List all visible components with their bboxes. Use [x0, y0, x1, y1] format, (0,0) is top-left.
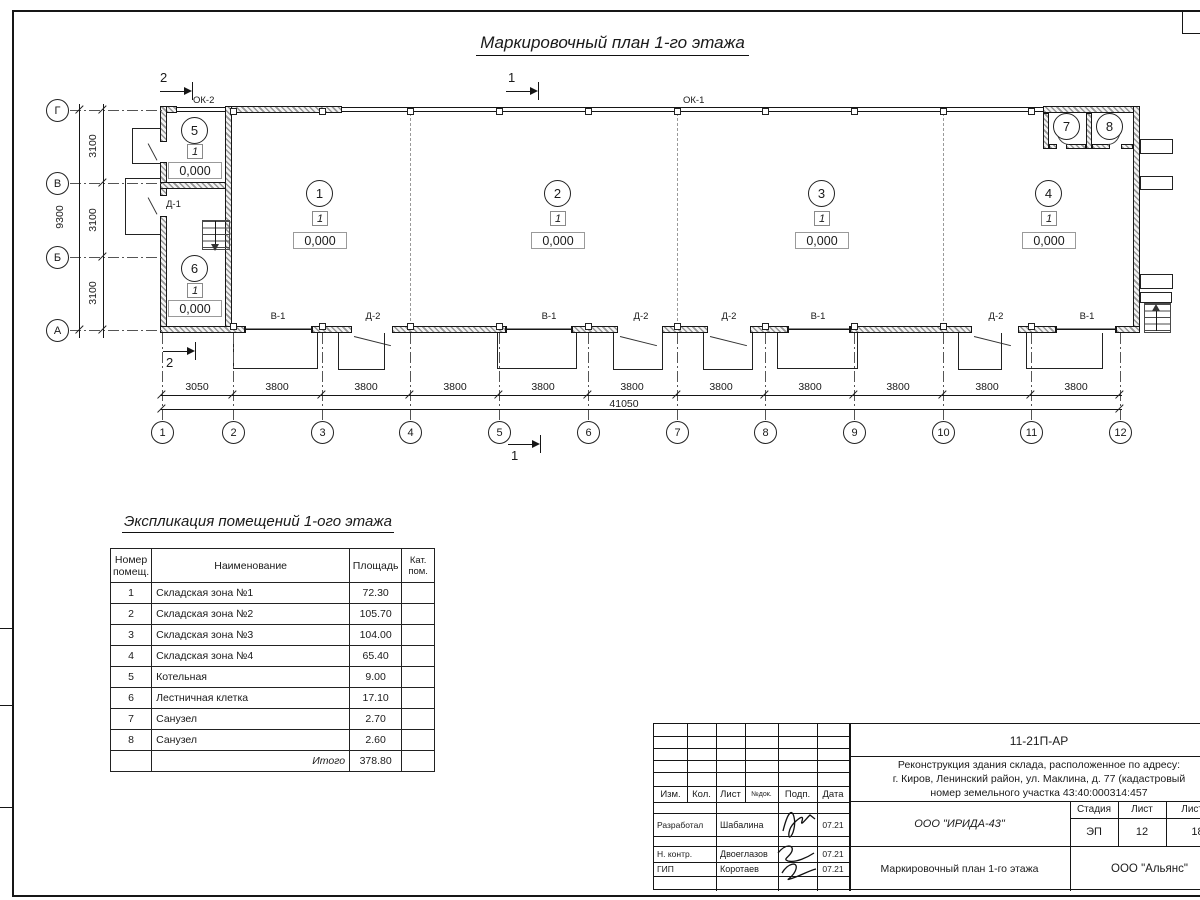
cell-cat	[402, 646, 435, 667]
arrow-right-icon	[187, 347, 195, 355]
role-name: Коротаев	[717, 862, 780, 876]
window-label-ok1: ОК-1	[683, 95, 704, 106]
opening-label: В-1	[1072, 311, 1102, 322]
rev-header: Лист	[716, 786, 745, 802]
col-axis-circle: 11	[1020, 421, 1043, 444]
column-marker	[851, 108, 858, 115]
role-label: Разработал	[655, 813, 717, 836]
stamp-line	[654, 736, 849, 737]
opening-label: Д-2	[358, 311, 388, 322]
explication-title: Экспликация помещений 1-ого этажа	[122, 513, 394, 531]
cell-area: 2.70	[350, 709, 402, 730]
wall	[160, 216, 167, 333]
col-header: Номер помещ.	[111, 549, 152, 583]
dim-value: 3050	[175, 381, 219, 393]
wall	[662, 326, 708, 333]
arrow-right-icon	[532, 440, 540, 448]
col-axis-circle: 8	[754, 421, 777, 444]
wall	[1066, 144, 1086, 149]
room-number-circle: 5	[181, 117, 208, 144]
role-label: Н. контр.	[655, 846, 717, 862]
porch	[125, 178, 160, 235]
section-marker-label: 2	[160, 70, 167, 85]
project-description: Реконструкция здания склада, расположенн…	[849, 758, 1200, 800]
page-title: Маркировочный план 1-го этажа	[340, 33, 885, 53]
axis-line	[499, 333, 500, 421]
cell-cat	[402, 667, 435, 688]
axis-line	[943, 333, 944, 421]
window-strip-ok2	[177, 107, 228, 112]
room-unit-box: 1	[187, 283, 203, 298]
arrow-up-icon	[1152, 304, 1160, 311]
role-date: 07.21	[817, 862, 849, 876]
door-label-d1: Д-1	[166, 199, 181, 210]
room-unit-box: 1	[550, 211, 566, 226]
stair-arrow-line	[215, 221, 216, 245]
axis-line	[854, 333, 855, 421]
explication-title-text: Экспликация помещений 1-ого этажа	[122, 513, 394, 533]
cell-area: 2.60	[350, 730, 402, 751]
cell-name: Складская зона №4	[152, 646, 350, 667]
cell-num	[111, 751, 152, 772]
column-marker	[940, 108, 947, 115]
room-level-mark: 0,000	[168, 300, 222, 317]
room-level-mark: 0,000	[531, 232, 585, 249]
project-description-line: Реконструкция здания склада, расположенн…	[849, 758, 1200, 772]
section-arrow	[506, 91, 532, 92]
room-number-circle: 7	[1053, 113, 1080, 140]
section-arrow	[160, 91, 186, 92]
column-marker	[496, 323, 503, 330]
cell-name: Складская зона №1	[152, 583, 350, 604]
stamp-line	[654, 748, 849, 749]
table-row: 2Складская зона №2105.70	[111, 604, 435, 625]
opening-label: В-1	[534, 311, 564, 322]
cell-num: 2	[111, 604, 152, 625]
column-marker	[319, 323, 326, 330]
section-marker-label: 1	[511, 448, 518, 463]
porch	[132, 128, 160, 164]
cell-area: 72.30	[350, 583, 402, 604]
role-date: 07.21	[817, 813, 849, 836]
stair-arrow-line	[1156, 310, 1157, 331]
table-total-row: Итого378.80	[111, 751, 435, 772]
ramp	[1140, 292, 1172, 303]
cell-num: 7	[111, 709, 152, 730]
sheets-value: 18	[1166, 818, 1200, 846]
room-number-circle: 4	[1035, 180, 1062, 207]
axis-line	[410, 333, 411, 421]
signature	[774, 839, 818, 883]
dim-value: 3800	[876, 381, 920, 393]
row-axis-circle: В	[46, 172, 69, 195]
room-number-circle: 1	[306, 180, 333, 207]
stage-value: ЭП	[1070, 818, 1118, 846]
column-marker	[674, 108, 681, 115]
room-unit-box: 1	[814, 211, 830, 226]
section-tick	[538, 82, 539, 100]
frame-corner-box	[1182, 11, 1200, 34]
col-axis-circle: 10	[932, 421, 955, 444]
col-axis-circle: 9	[843, 421, 866, 444]
sheets-label: Листов	[1166, 801, 1200, 818]
dim-value: 3800	[521, 381, 565, 393]
column-marker	[762, 323, 769, 330]
column-marker	[585, 323, 592, 330]
ramp	[1140, 139, 1173, 154]
room-level-mark: 0,000	[168, 162, 222, 179]
cell-num: 5	[111, 667, 152, 688]
window-v1	[788, 326, 850, 333]
axis-line	[322, 333, 323, 421]
table-row: 3Складская зона №3104.00	[111, 625, 435, 646]
axis-line	[70, 257, 162, 258]
section-marker-label: 2	[166, 355, 173, 370]
col-axis-circle: 3	[311, 421, 334, 444]
role-label: ГИП	[655, 862, 717, 876]
total-label: Итого	[152, 751, 350, 772]
drawing-sheet: { "title": "Маркировочный план 1-го этаж…	[0, 0, 1200, 900]
table-row: 5Котельная9.00	[111, 667, 435, 688]
opening-label: Д-2	[981, 311, 1011, 322]
stamp-line	[654, 876, 849, 877]
row-axis-circle: А	[46, 319, 69, 342]
axis-line	[233, 333, 234, 421]
col-axis-circle: 5	[488, 421, 511, 444]
cell-area: 17.10	[350, 688, 402, 709]
cell-area: 105.70	[350, 604, 402, 625]
porch	[613, 333, 663, 370]
cell-cat	[402, 730, 435, 751]
frame-margin-tick	[0, 628, 12, 629]
cell-name: Котельная	[152, 667, 350, 688]
page-title-text: Маркировочный план 1-го этажа	[476, 33, 749, 56]
col-axis-circle: 1	[151, 421, 174, 444]
wall	[1133, 106, 1140, 333]
frame-margin-tick	[0, 705, 12, 706]
wall	[160, 106, 167, 142]
room-number-circle: 3	[808, 180, 835, 207]
wall	[160, 182, 232, 189]
room-level-mark: 0,000	[795, 232, 849, 249]
contractor-org: ООО "Альянс"	[1070, 846, 1200, 891]
dim-value: 3800	[610, 381, 654, 393]
cell-num: 3	[111, 625, 152, 646]
porch	[233, 333, 318, 369]
dim-value: 3100	[87, 198, 99, 242]
room-level-mark: 0,000	[293, 232, 347, 249]
zone-divider	[943, 113, 944, 326]
dim-value: 3800	[965, 381, 1009, 393]
section-tick	[192, 82, 193, 100]
room-unit-box: 1	[312, 211, 328, 226]
designer-org: ООО "ИРИДА-43"	[849, 801, 1070, 846]
column-marker	[1028, 323, 1035, 330]
section-marker-label: 1	[508, 70, 515, 85]
cell-cat	[402, 709, 435, 730]
column-marker	[674, 323, 681, 330]
wall	[572, 326, 618, 333]
cell-cat	[402, 751, 435, 772]
cell-area: 9.00	[350, 667, 402, 688]
column-marker	[319, 108, 326, 115]
cell-num: 6	[111, 688, 152, 709]
column-marker	[851, 323, 858, 330]
doc-code: 11-21П-АР	[849, 728, 1200, 753]
dim-line	[79, 104, 80, 338]
table-row: 7Санузел2.70	[111, 709, 435, 730]
room-number-circle: 2	[544, 180, 571, 207]
column-marker	[762, 108, 769, 115]
dim-value: 3800	[255, 381, 299, 393]
column-marker	[496, 108, 503, 115]
wall	[1043, 106, 1140, 113]
opening-label: Д-2	[626, 311, 656, 322]
table-row: 4Складская зона №465.40	[111, 646, 435, 667]
signature	[780, 807, 816, 839]
column-marker	[230, 108, 237, 115]
table-row: 1Складская зона №172.30	[111, 583, 435, 604]
zone-divider	[677, 113, 678, 326]
section-arrow	[163, 351, 189, 352]
rev-header: Изм.	[654, 786, 687, 802]
wall	[1049, 144, 1057, 149]
room-unit-box: 1	[1041, 211, 1057, 226]
row-axis-circle: Г	[46, 99, 69, 122]
stamp-line	[654, 836, 849, 837]
col-axis-circle: 6	[577, 421, 600, 444]
arrow-right-icon	[530, 87, 538, 95]
col-axis-circle: 7	[666, 421, 689, 444]
room-number-circle: 8	[1096, 113, 1123, 140]
dim-value: 3800	[344, 381, 388, 393]
col-header: Наименование	[152, 549, 350, 583]
rev-header: Дата	[817, 786, 849, 802]
column-marker	[585, 108, 592, 115]
axis-line	[588, 333, 589, 421]
table-row: 8Санузел2.60	[111, 730, 435, 751]
axis-line	[1031, 333, 1032, 421]
section-arrow	[508, 444, 534, 445]
col-axis-circle: 2	[222, 421, 245, 444]
cell-name: Складская зона №2	[152, 604, 350, 625]
ramp	[1140, 176, 1173, 190]
cell-num: 8	[111, 730, 152, 751]
frame-top	[12, 10, 1200, 12]
column-marker	[407, 108, 414, 115]
sheet-value: 12	[1118, 818, 1166, 846]
porch	[338, 333, 385, 370]
cell-cat	[402, 604, 435, 625]
project-description-line: номер земельного участка 43:40:000314:45…	[849, 786, 1200, 800]
room-number-circle: 6	[181, 255, 208, 282]
window-v1	[506, 326, 572, 333]
cell-num: 1	[111, 583, 152, 604]
cell-name: Лестничная клетка	[152, 688, 350, 709]
axis-line	[677, 333, 678, 421]
wall	[850, 326, 972, 333]
opening-label: В-1	[803, 311, 833, 322]
room-unit-box: 1	[187, 144, 203, 159]
axis-line	[70, 183, 162, 184]
table-row: 6Лестничная клетка17.10	[111, 688, 435, 709]
doc-title: Маркировочный план 1-го этажа	[849, 846, 1070, 891]
window-strip-ok1	[342, 107, 1043, 112]
frame-left	[12, 10, 14, 897]
porch	[703, 333, 753, 370]
opening-label: Д-2	[714, 311, 744, 322]
zone-divider	[410, 113, 411, 326]
cell-cat	[402, 688, 435, 709]
opening-label: В-1	[263, 311, 293, 322]
rev-header: Подп.	[778, 786, 817, 802]
window-v1	[1056, 326, 1116, 333]
cell-name: Санузел	[152, 709, 350, 730]
cell-area: 65.40	[350, 646, 402, 667]
role-date: 07.21	[817, 846, 849, 862]
col-axis-circle: 12	[1109, 421, 1132, 444]
cell-cat	[402, 583, 435, 604]
column-marker	[1028, 108, 1035, 115]
stage-label: Стадия	[1070, 801, 1118, 818]
window-label-ok2: ОК-2	[193, 95, 214, 106]
room-level-mark: 0,000	[1022, 232, 1076, 249]
axis-line	[765, 333, 766, 421]
project-description-line: г. Киров, Ленинский район, ул. Маклина, …	[849, 772, 1200, 786]
dim-line	[103, 104, 104, 338]
role-name: Шабалина	[717, 813, 780, 836]
wall	[160, 162, 167, 196]
cell-cat	[402, 625, 435, 646]
column-marker	[940, 323, 947, 330]
dim-value: 3100	[87, 124, 99, 168]
sheet-label: Лист	[1118, 801, 1166, 818]
porch	[958, 333, 1002, 370]
dim-value: 3800	[699, 381, 743, 393]
dim-line	[160, 395, 1122, 396]
wall	[750, 326, 788, 333]
ramp	[1140, 274, 1173, 289]
rev-header: Кол.	[687, 786, 716, 802]
stamp-line	[654, 772, 849, 773]
wall	[1121, 144, 1133, 149]
table-header-row: Номер помещ. Наименование Площадь Кат. п…	[111, 549, 435, 583]
col-header: Площадь	[350, 549, 402, 583]
section-tick	[540, 435, 541, 453]
porch	[777, 333, 858, 369]
rev-header: №док.	[745, 786, 778, 802]
dim-value: 3800	[433, 381, 477, 393]
frame-margin-tick	[0, 807, 12, 808]
dim-value: 3800	[788, 381, 832, 393]
col-axis-circle: 4	[399, 421, 422, 444]
stamp-line	[654, 760, 849, 761]
dim-total: 9300	[54, 195, 66, 239]
explication-table: Номер помещ. Наименование Площадь Кат. п…	[110, 548, 435, 772]
axis-line	[70, 330, 162, 331]
porch	[1026, 333, 1103, 369]
cell-area: 104.00	[350, 625, 402, 646]
wall	[1018, 326, 1056, 333]
cell-name: Складская зона №3	[152, 625, 350, 646]
wall	[1116, 326, 1140, 333]
cell-num: 4	[111, 646, 152, 667]
porch	[497, 333, 577, 369]
dim-total: 41050	[596, 398, 652, 410]
cell-name: Санузел	[152, 730, 350, 751]
stamp-line	[654, 802, 849, 803]
column-marker	[230, 323, 237, 330]
frame-bottom	[12, 895, 1200, 897]
column-marker	[407, 323, 414, 330]
dim-value: 3800	[1054, 381, 1098, 393]
total-value: 378.80	[350, 751, 402, 772]
axis-line	[70, 110, 162, 111]
arrow-right-icon	[184, 87, 192, 95]
wall	[312, 326, 352, 333]
window-v1	[245, 326, 312, 333]
title-block: Изм. Кол. Лист №док. Подп. Дата Разработ…	[653, 723, 1200, 890]
role-name: Двоеглазов	[717, 846, 780, 862]
section-tick	[195, 342, 196, 360]
stamp-line	[849, 756, 1200, 757]
col-header: Кат. пом.	[402, 549, 435, 583]
arrow-down-icon	[211, 244, 219, 251]
dim-value: 3100	[87, 271, 99, 315]
row-axis-circle: Б	[46, 246, 69, 269]
